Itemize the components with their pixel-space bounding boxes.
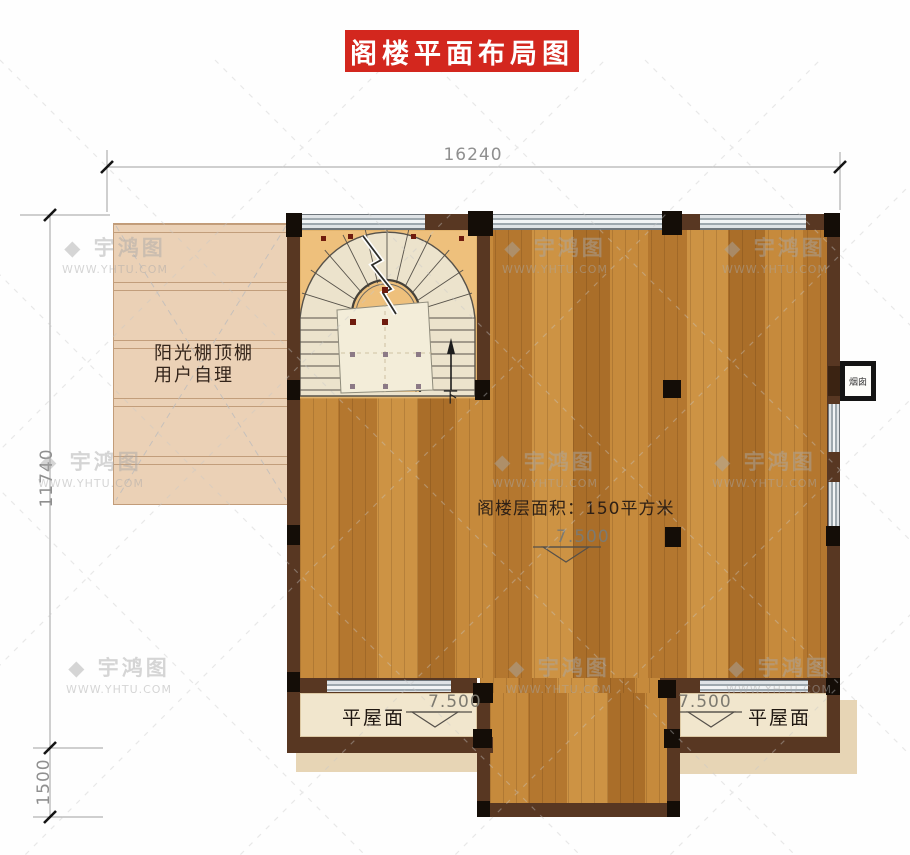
wall-bay-bottom	[477, 803, 680, 817]
column	[287, 525, 300, 545]
attic-area-label: 阁楼层面积：150平方米	[477, 494, 674, 519]
watermark: ◆ 宇鸿图 WWW.YHTU.COM	[66, 652, 172, 696]
column	[287, 380, 300, 400]
attic-floor-gap	[480, 678, 667, 693]
column	[826, 678, 840, 695]
wall-left-roof-bottom	[287, 737, 493, 753]
chimney-label: 烟囱	[849, 375, 867, 388]
flat-roof-right-label: 平屋面	[748, 703, 811, 730]
column	[468, 211, 493, 236]
window-top-3	[700, 214, 806, 230]
column	[473, 729, 492, 748]
yhtu-logo-icon: ◆	[64, 236, 83, 260]
column	[662, 211, 682, 235]
window-bottom-right	[700, 680, 808, 692]
dimension-left: 11740	[37, 445, 57, 511]
plan-title: 阁楼平面布局图	[350, 32, 574, 71]
column	[824, 213, 840, 237]
window-right-2	[828, 482, 840, 526]
chimney-stub	[828, 366, 840, 396]
column	[667, 801, 680, 817]
attic-floor	[300, 230, 827, 678]
wall-right-roof-bottom	[667, 737, 840, 753]
level-center-value: 7.500	[556, 527, 610, 547]
stairs-down-label: 下	[443, 386, 458, 407]
column	[665, 527, 681, 547]
column	[826, 526, 840, 546]
yhtu-url-text: WWW.YHTU.COM	[66, 683, 172, 696]
window-top-1	[302, 214, 425, 230]
column	[286, 213, 302, 237]
column	[658, 680, 676, 698]
wall-left	[287, 214, 300, 693]
flat-roof-left-label: 平屋面	[342, 703, 405, 730]
window-bottom-left	[327, 680, 451, 692]
dimension-top: 16240	[433, 145, 513, 165]
chimney: 烟囱	[840, 361, 876, 401]
column	[287, 672, 300, 692]
yhtu-logo-text: 宇鸿图	[98, 656, 170, 680]
window-right-1	[828, 404, 840, 452]
wall-stair-partition	[477, 230, 490, 382]
column	[475, 380, 490, 400]
level-left-value: 7.500	[428, 692, 482, 712]
sunroom-label-line2: 用户自理	[154, 361, 234, 387]
level-right-value: 7.500	[678, 692, 732, 712]
yhtu-logo-icon: ◆	[68, 656, 87, 680]
attic-floor-bay	[490, 693, 667, 805]
wall-right-roof-side	[827, 693, 840, 753]
column	[664, 729, 680, 748]
plan-title-banner: 阁楼平面布局图	[345, 30, 579, 72]
floor-plan-page: 阁楼平面布局图 阳光棚顶棚 用户自理	[0, 0, 910, 855]
column	[663, 380, 681, 398]
column	[477, 801, 490, 817]
window-top-2	[493, 214, 662, 230]
dimension-bottom-left: 1500	[34, 754, 54, 810]
wall-right	[827, 214, 840, 693]
